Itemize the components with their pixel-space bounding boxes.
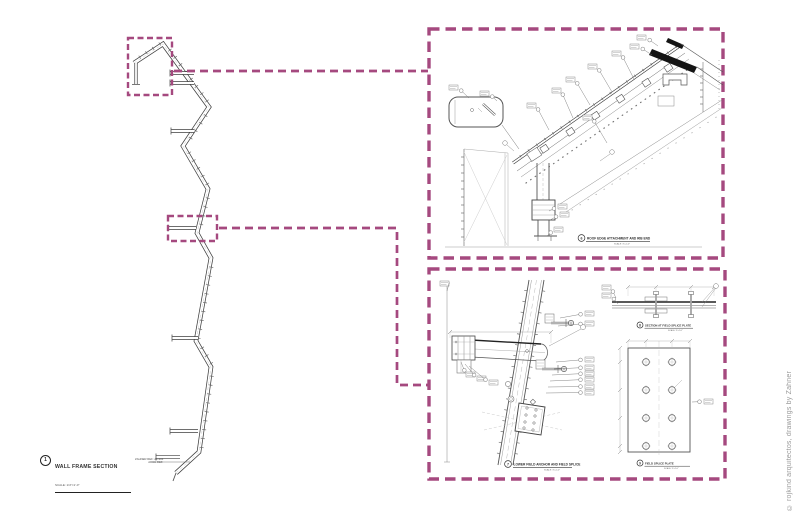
callout-bubble <box>449 97 519 149</box>
title-block: 1 WALL FRAME SECTION SCALE: 1/4″=1′-0″ Z… <box>40 455 163 493</box>
caption-scale: SCALE: 3″=1′-0″ <box>614 243 630 246</box>
caption-bottom-main: 7 LOWER FIELD ANCHOR AND FIELD SPLICE SC… <box>505 461 581 472</box>
caption-text: SECTION AT FIELD SPLICE PLATE <box>645 324 691 328</box>
caption-scale: SCALE: 3″=1′-0″ <box>664 467 679 470</box>
section-scale: SCALE: 1/4″=1′-0″ <box>55 483 79 487</box>
caption-text: FIELD SPLICE PLATE <box>645 462 674 466</box>
column-splice-plate <box>482 403 562 435</box>
anchor-arm <box>452 324 586 373</box>
copyright-notice: © rojkind arquitectos, drawings by Zahne… <box>786 371 793 510</box>
detail-bottom-splice: 7 LOWER FIELD ANCHOR AND FIELD SPLICE SC… <box>440 280 718 472</box>
caption-scale: SCALE: 3″=1′-0″ <box>668 329 683 332</box>
caption-text: LOWER FIELD ANCHOR AND FIELD SPLICE <box>514 463 581 467</box>
diagonal-column <box>497 280 545 465</box>
support-column <box>527 147 557 241</box>
roof-beam <box>513 45 694 183</box>
caption-number: 9 <box>639 461 641 465</box>
caption-scale: SCALE: 3″=1′-0″ <box>544 469 560 472</box>
caption-number: 8 <box>639 323 641 327</box>
roof-apex-fascia <box>649 38 723 112</box>
callout-leader-middle <box>219 228 428 385</box>
detail-number-badge: 1 <box>40 455 51 466</box>
drawing-sheet: 6 ROOF EDGE ATTACHMENT AND RIB END SCALE… <box>0 0 800 518</box>
caption-number: 6 <box>581 236 583 240</box>
splice-section-view: 8 SECTION AT FIELD SPLICE PLATE SCALE: 3… <box>602 284 718 333</box>
wall-frame-section <box>132 43 214 481</box>
caption-top-detail: 6 ROOF EDGE ATTACHMENT AND RIB END SCALE… <box>578 235 651 246</box>
arch-ref: ARCH REF: <box>148 460 163 464</box>
sheet-drawing: 6 ROOF EDGE ATTACHMENT AND RIB END SCALE… <box>0 0 800 518</box>
frame-brackets <box>152 70 198 482</box>
annotations-bottom-detail <box>461 311 594 395</box>
caption-text: ROOF EDGE ATTACHMENT AND RIB END <box>587 237 651 241</box>
wall-panel <box>461 149 508 246</box>
splice-plate-plan: 9 FIELD SPLICE PLATE SCALE: 3″=1′-0″ <box>618 339 713 470</box>
through-bolts <box>536 314 574 373</box>
reference-block: ZAHNER REF: Z1-304 ARCH REF: <box>135 458 163 465</box>
section-title: WALL FRAME SECTION <box>55 464 118 470</box>
caption-number: 7 <box>507 462 509 466</box>
detail-top-roof-edge: 6 ROOF EDGE ATTACHMENT AND RIB END SCALE… <box>445 35 723 247</box>
